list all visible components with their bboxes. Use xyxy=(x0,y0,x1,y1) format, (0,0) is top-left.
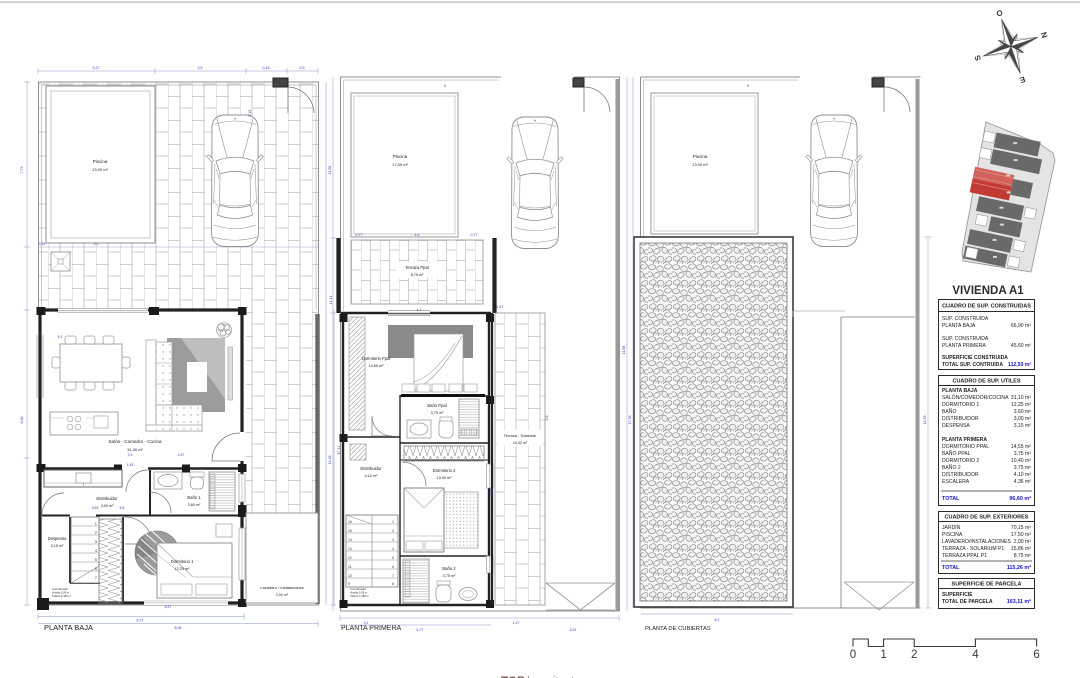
svg-text:12,25 m²: 12,25 m² xyxy=(1011,402,1031,408)
svg-text:12: 12 xyxy=(348,556,352,560)
svg-text:7: 7 xyxy=(392,574,394,578)
svg-text:5,37: 5,37 xyxy=(165,605,172,609)
svg-text:SUPERFICIE: SUPERFICIE xyxy=(942,592,973,598)
svg-text:PLANTA BAJA: PLANTA BAJA xyxy=(44,623,93,632)
svg-text:ESCALERA: ESCALERA xyxy=(942,479,970,485)
svg-text:2: 2 xyxy=(392,529,394,533)
svg-text:Baño 1: Baño 1 xyxy=(187,495,201,500)
svg-text:PISCINA: PISCINA xyxy=(942,532,963,538)
svg-text:6,77: 6,77 xyxy=(417,628,424,632)
svg-text:14: 14 xyxy=(348,538,352,542)
svg-text:2,00 m²: 2,00 m² xyxy=(1014,539,1032,545)
svg-text:8,75 m²: 8,75 m² xyxy=(1014,553,1032,559)
svg-text:70,15 m²: 70,15 m² xyxy=(1011,525,1031,531)
svg-text:3,1: 3,1 xyxy=(364,621,369,625)
svg-text:12,25 m²: 12,25 m² xyxy=(175,567,191,571)
svg-text:VIVIENDA A1: VIVIENDA A1 xyxy=(952,285,1024,297)
svg-text:1,43: 1,43 xyxy=(127,463,134,467)
svg-text:8: 8 xyxy=(392,582,394,586)
svg-text:Piscina: Piscina xyxy=(393,154,408,159)
svg-text:3,75 m²: 3,75 m² xyxy=(1014,465,1032,471)
svg-text:3,5: 3,5 xyxy=(198,66,203,70)
svg-text:Terraza Ppal: Terraza Ppal xyxy=(405,265,429,270)
svg-text:5: 5 xyxy=(392,556,394,560)
svg-text:TOTAL: TOTAL xyxy=(942,565,960,571)
svg-text:Baño Ppal: Baño Ppal xyxy=(427,403,446,408)
svg-text:Tabica 0,185 m: Tabica 0,185 m xyxy=(350,594,370,598)
svg-text:SALÓN/COMEDOR/COCINA: SALÓN/COMEDOR/COCINA xyxy=(942,394,1009,401)
svg-text:31,10 m²: 31,10 m² xyxy=(1011,395,1031,401)
svg-text:2,00 m²: 2,00 m² xyxy=(276,593,289,597)
svg-text:PLANTA PRIMERA: PLANTA PRIMERA xyxy=(942,343,986,349)
svg-text:13: 13 xyxy=(348,547,352,551)
svg-text:10: 10 xyxy=(348,574,352,578)
svg-text:PLANTA DE CUBIERTAS: PLANTA DE CUBIERTAS xyxy=(645,626,711,632)
svg-text:6,1: 6,1 xyxy=(715,618,720,622)
svg-text:0,9: 0,9 xyxy=(300,66,305,70)
svg-text:5,27: 5,27 xyxy=(93,66,100,70)
svg-text:4,7: 4,7 xyxy=(417,308,422,312)
svg-text:13,00 m²: 13,00 m² xyxy=(692,162,708,167)
svg-text:3,15 m²: 3,15 m² xyxy=(51,544,65,548)
svg-text:PLANTA PRIMERA: PLANTA PRIMERA xyxy=(942,437,987,443)
svg-text:4,36 m²: 4,36 m² xyxy=(1014,479,1032,485)
svg-text:Baño 2: Baño 2 xyxy=(442,566,456,571)
svg-text:1: 1 xyxy=(392,520,394,524)
svg-text:BAÑO 2: BAÑO 2 xyxy=(942,464,961,471)
svg-text:16: 16 xyxy=(348,520,352,524)
svg-text:3: 3 xyxy=(392,538,394,542)
svg-text:13,38: 13,38 xyxy=(328,456,332,465)
svg-text:3,60 m²: 3,60 m² xyxy=(188,503,202,507)
svg-text:11: 11 xyxy=(348,565,352,569)
svg-text:4: 4 xyxy=(972,649,979,661)
svg-text:BAÑO PPAL: BAÑO PPAL xyxy=(942,450,971,457)
svg-text:N: N xyxy=(1039,31,1049,40)
svg-text:JARDÍN: JARDÍN xyxy=(942,524,961,531)
svg-text:14,55: 14,55 xyxy=(923,416,927,425)
svg-text:Distribuidor: Distribuidor xyxy=(96,496,118,501)
svg-text:Lavadero / Instalaciones: Lavadero / Instalaciones xyxy=(260,585,303,590)
svg-text:2: 2 xyxy=(911,649,917,661)
svg-text:0,77: 0,77 xyxy=(356,233,363,237)
svg-text:5,8: 5,8 xyxy=(120,506,125,510)
svg-text:9,38: 9,38 xyxy=(490,489,494,496)
svg-text:4,10 m²: 4,10 m² xyxy=(365,474,379,478)
svg-text:0: 0 xyxy=(850,649,856,661)
svg-text:Piscina: Piscina xyxy=(93,159,108,164)
svg-text:PLANTA BAJA: PLANTA BAJA xyxy=(942,323,976,329)
svg-text:6: 6 xyxy=(1033,649,1039,661)
svg-text:Dormitorio 1: Dormitorio 1 xyxy=(171,559,194,564)
svg-text:DESPENSA: DESPENSA xyxy=(942,423,970,429)
svg-text:CUADRO DE SUP. EXTERIORES: CUADRO DE SUP. EXTERIORES xyxy=(945,515,1029,521)
svg-text:Dormitorio Ppal: Dormitorio Ppal xyxy=(362,356,391,361)
svg-text:3,15 m²: 3,15 m² xyxy=(1014,423,1032,429)
svg-text:6: 6 xyxy=(392,565,394,569)
svg-text:31,30 m²: 31,30 m² xyxy=(127,447,143,452)
svg-text:5,1: 5,1 xyxy=(94,242,99,246)
svg-text:LAVADERO/INSTALACIONES: LAVADERO/INSTALACIONES xyxy=(942,539,1011,545)
svg-text:O: O xyxy=(995,8,1004,19)
svg-text:1: 1 xyxy=(880,649,886,661)
svg-text:5,8: 5,8 xyxy=(545,416,549,421)
svg-text:2,47: 2,47 xyxy=(178,453,185,457)
svg-text:CUADRO DE SUP. CONSTRUIDAS: CUADRO DE SUP. CONSTRUIDAS xyxy=(942,304,1031,310)
svg-text:Piscina: Piscina xyxy=(693,154,708,159)
svg-text:DORMITORIO 1: DORMITORIO 1 xyxy=(942,402,979,408)
svg-text:Dormitorio 2: Dormitorio 2 xyxy=(433,468,456,473)
svg-text:15,86 m²: 15,86 m² xyxy=(1011,546,1031,552)
svg-text:TERRAZA - SOLARIUM P1: TERRAZA - SOLARIUM P1 xyxy=(942,546,1004,552)
svg-text:DISTRIBUIDOR: DISTRIBUIDOR xyxy=(942,416,979,422)
svg-text:PLANTA PRIMERA: PLANTA PRIMERA xyxy=(341,625,401,632)
svg-text:14,55 m²: 14,55 m² xyxy=(1011,444,1031,450)
svg-text:3,75 m²: 3,75 m² xyxy=(443,574,457,578)
svg-text:Despensa: Despensa xyxy=(48,536,68,541)
svg-text:TOTAL DE PARCELA: TOTAL DE PARCELA xyxy=(942,599,993,605)
svg-text:TERRAZA PPAL P1: TERRAZA PPAL P1 xyxy=(942,553,987,559)
svg-text:DORMITORIO PPAL: DORMITORIO PPAL xyxy=(942,444,989,450)
svg-text:CUADRO DE SUP. UTILES: CUADRO DE SUP. UTILES xyxy=(952,379,1020,385)
svg-text:96,60 m²: 96,60 m² xyxy=(1009,496,1031,502)
svg-text:3,75 m²: 3,75 m² xyxy=(431,411,445,415)
svg-text:5,19: 5,19 xyxy=(248,110,252,117)
svg-text:TOTAL: TOTAL xyxy=(942,496,960,502)
svg-text:8,06: 8,06 xyxy=(175,626,182,630)
svg-text:Salón - Comedor - Cocina: Salón - Comedor - Cocina xyxy=(108,439,162,444)
svg-text:17,50 m²: 17,50 m² xyxy=(392,162,408,167)
svg-text:E: E xyxy=(1018,74,1027,84)
svg-text:0,77: 0,77 xyxy=(471,233,478,237)
svg-text:0,95: 0,95 xyxy=(39,242,46,246)
svg-text:11,41: 11,41 xyxy=(329,296,333,305)
svg-text:15,42 m²: 15,42 m² xyxy=(513,441,528,445)
svg-text:112,50 m²: 112,50 m² xyxy=(1008,362,1031,368)
svg-text:10,40 m²: 10,40 m² xyxy=(1011,458,1031,464)
svg-text:3,3: 3,3 xyxy=(128,453,133,457)
svg-text:5: 5 xyxy=(747,84,749,88)
svg-text:1,47: 1,47 xyxy=(497,305,504,309)
svg-text:PLANTA BAJA: PLANTA BAJA xyxy=(942,388,978,394)
svg-text:6,77: 6,77 xyxy=(137,619,144,623)
svg-text:4,4: 4,4 xyxy=(415,233,420,237)
svg-text:Distribuidor: Distribuidor xyxy=(360,466,382,471)
svg-text:0,43: 0,43 xyxy=(263,66,270,70)
svg-text:4: 4 xyxy=(392,547,394,551)
svg-text:17,50 m²: 17,50 m² xyxy=(1011,532,1031,538)
svg-text:11,58: 11,58 xyxy=(328,166,332,175)
svg-text:SUP. CONSTRUIDA: SUP. CONSTRUIDA xyxy=(942,316,989,322)
svg-text:45,60 m²: 45,60 m² xyxy=(1011,343,1031,349)
svg-text:DISTRIBUIDOR: DISTRIBUIDOR xyxy=(942,472,979,478)
svg-text:14,55 m²: 14,55 m² xyxy=(369,364,385,368)
svg-text:7,73: 7,73 xyxy=(20,167,24,174)
svg-text:13,40 m²: 13,40 m² xyxy=(437,476,453,480)
svg-text:163,11 m²: 163,11 m² xyxy=(1007,599,1031,605)
svg-text:5,1: 5,1 xyxy=(58,335,63,339)
svg-text:BAÑO: BAÑO xyxy=(942,408,956,415)
svg-text:17,38: 17,38 xyxy=(628,416,632,425)
svg-text:3,60 m²: 3,60 m² xyxy=(1014,409,1032,415)
svg-text:66,90 m²: 66,90 m² xyxy=(1011,323,1031,329)
svg-text:3,00 m²: 3,00 m² xyxy=(101,504,115,508)
svg-text:115,26 m²: 115,26 m² xyxy=(1007,565,1031,571)
svg-text:0,93: 0,93 xyxy=(92,506,99,510)
svg-text:15: 15 xyxy=(348,529,352,533)
svg-text:9,38: 9,38 xyxy=(20,417,24,424)
svg-text:TOTAL SUP. CONTRUIDA: TOTAL SUP. CONTRUIDA xyxy=(942,362,1003,368)
svg-text:8,75 m²: 8,75 m² xyxy=(411,273,425,277)
svg-text:S: S xyxy=(973,53,983,62)
svg-text:Terraza - Solarium: Terraza - Solarium xyxy=(504,433,537,438)
svg-text:DORMITORIO 2: DORMITORIO 2 xyxy=(942,458,979,464)
svg-text:5,51: 5,51 xyxy=(570,628,577,632)
svg-text:SUPERFICIE CONSTRUIDA: SUPERFICIE CONSTRUIDA xyxy=(942,355,1008,361)
svg-text:4,10 m²: 4,10 m² xyxy=(1014,472,1032,478)
svg-text:13,00 m²: 13,00 m² xyxy=(92,167,108,172)
svg-text:9: 9 xyxy=(348,582,350,586)
svg-text:11,58: 11,58 xyxy=(622,346,626,355)
svg-text:SUPERFICIE DE PARCELA: SUPERFICIE DE PARCELA xyxy=(952,582,1022,588)
svg-text:1,47: 1,47 xyxy=(513,621,520,625)
svg-text:SUP. CONSTRUIDA: SUP. CONSTRUIDA xyxy=(942,336,989,342)
svg-text:3,00 m²: 3,00 m² xyxy=(1014,416,1032,422)
svg-text:5: 5 xyxy=(444,84,446,88)
svg-text:3,75 m²: 3,75 m² xyxy=(1014,451,1032,457)
svg-text:Tabica 0,185 m: Tabica 0,185 m xyxy=(52,594,72,598)
